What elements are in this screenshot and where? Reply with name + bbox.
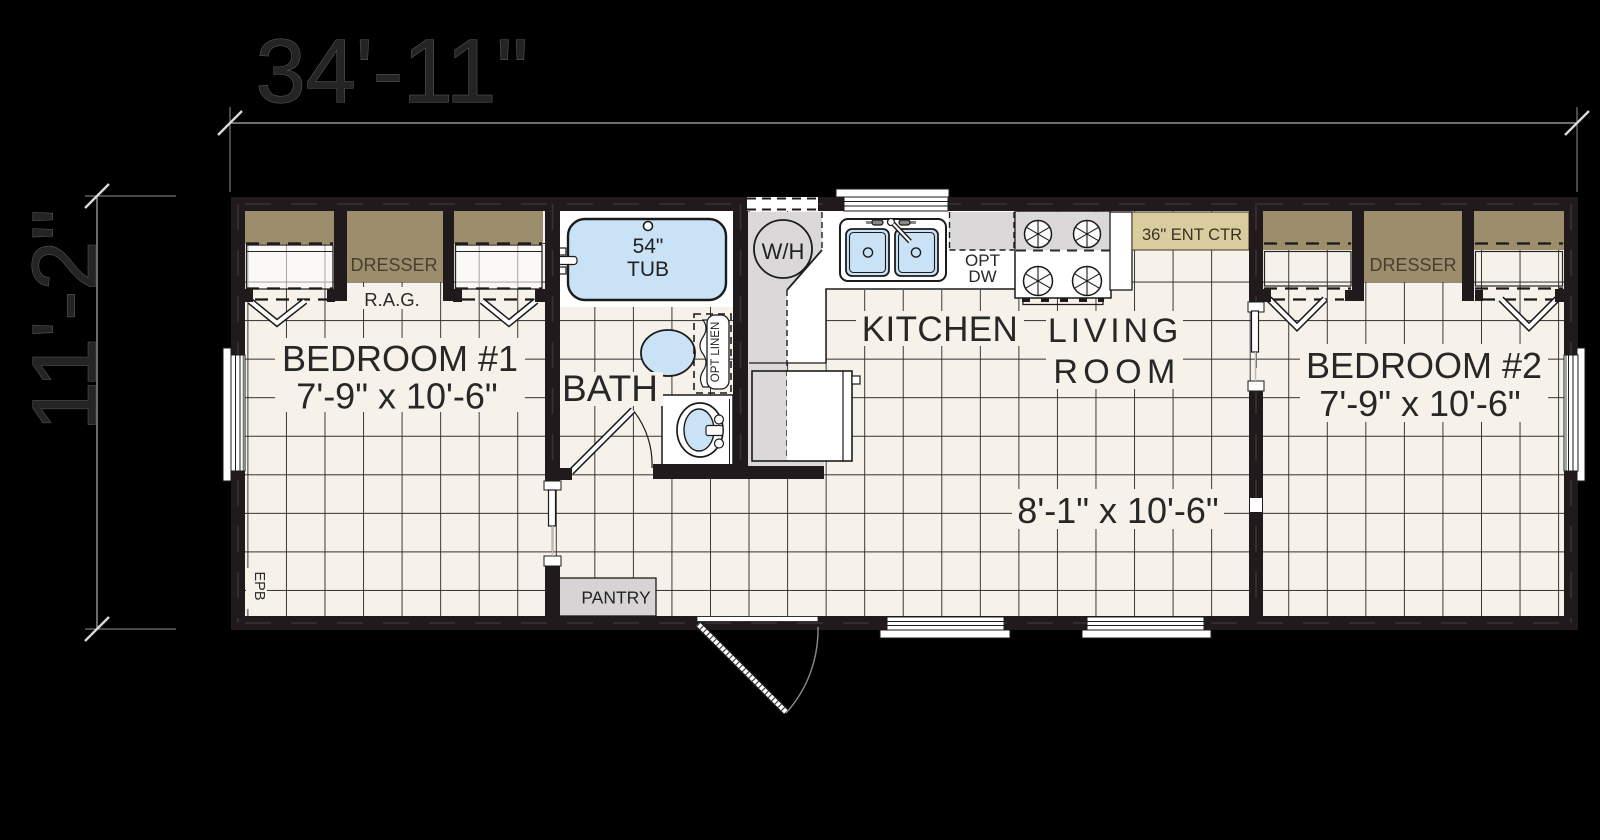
svg-text:EPB: EPB (251, 571, 267, 600)
svg-text:7'-9" x 10'-6": 7'-9" x 10'-6" (1319, 383, 1520, 424)
svg-text:R.A.G.: R.A.G. (364, 289, 420, 310)
svg-text:ROOM: ROOM (1053, 353, 1180, 391)
svg-text:DW: DW (968, 267, 996, 286)
svg-text:DRESSER: DRESSER (1369, 255, 1456, 275)
svg-text:DRESSER: DRESSER (350, 255, 437, 275)
svg-text:PANTRY: PANTRY (581, 588, 651, 608)
svg-text:8'-1" x 10'-6": 8'-1" x 10'-6" (1017, 490, 1218, 531)
svg-text:BEDROOM #1: BEDROOM #1 (282, 338, 518, 379)
svg-text:TUB: TUB (627, 258, 669, 281)
svg-text:LIVING: LIVING (1048, 312, 1182, 350)
svg-text:BEDROOM #2: BEDROOM #2 (1306, 345, 1542, 386)
svg-text:W/H: W/H (762, 239, 805, 264)
svg-text:7'-9" x 10'-6": 7'-9" x 10'-6" (296, 376, 497, 417)
svg-text:11'-2": 11'-2" (15, 209, 115, 432)
svg-text:36" ENT CTR: 36" ENT CTR (1142, 226, 1242, 244)
svg-text:34'-11": 34'-11" (256, 22, 529, 122)
svg-text:OPT LINEN: OPT LINEN (710, 322, 722, 383)
svg-text:KITCHEN: KITCHEN (862, 310, 1018, 349)
svg-text:54": 54" (633, 235, 664, 258)
svg-text:BATH: BATH (562, 368, 658, 409)
